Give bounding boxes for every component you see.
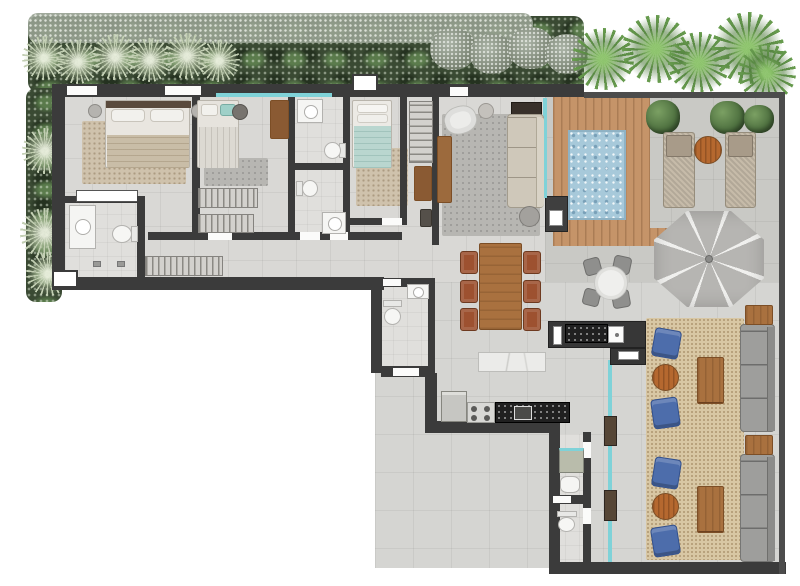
fridge — [441, 391, 467, 422]
lounge-sofa — [740, 454, 775, 562]
master-bed — [105, 100, 190, 168]
blanket — [107, 135, 189, 168]
dining-chair — [460, 280, 478, 303]
pool — [568, 130, 626, 220]
lounger-cushion — [666, 135, 692, 157]
lounge-side-table — [745, 305, 773, 325]
cooktop — [467, 402, 495, 423]
door-powder-room — [383, 279, 401, 286]
lounge-round-table — [652, 364, 679, 391]
door-bedroom-3 — [382, 218, 402, 225]
sun-lounger — [663, 132, 695, 208]
outer-wall-mid-left — [371, 277, 382, 373]
parasol-pole — [705, 255, 713, 263]
kitchen-island — [478, 352, 546, 372]
pillow — [357, 114, 388, 123]
door-bathroom-3 — [300, 232, 320, 240]
living-sideboard — [437, 136, 452, 203]
master-built-in-niche — [76, 190, 138, 202]
bathroom-2-toilet — [324, 142, 346, 159]
blanket — [199, 127, 238, 168]
pool-equipment-door — [549, 210, 563, 226]
sink-basin — [328, 217, 342, 231]
window-recess-1 — [67, 86, 97, 95]
window-glass-bedrooms — [216, 93, 332, 97]
lounge-coffee-table-pair — [697, 357, 724, 404]
lounge-round-table — [652, 493, 679, 520]
window-recess-2 — [165, 86, 201, 95]
toilet-bowl — [324, 142, 341, 159]
outer-wall-left — [52, 84, 65, 290]
bar-sink — [608, 326, 624, 343]
burner — [484, 406, 490, 412]
sliding-door-leaf-2 — [604, 490, 617, 521]
lounger-cushion — [728, 135, 753, 157]
pillow — [201, 104, 218, 116]
lounge-blue-armchair — [651, 327, 683, 360]
bedroom-2-wardrobe-hatch — [198, 214, 254, 233]
powder-toilet — [382, 300, 403, 326]
powder-sink — [407, 284, 429, 299]
gray-shrub-icon — [430, 28, 476, 70]
toilet-tank — [383, 300, 402, 307]
bathroom-2-vanity — [297, 99, 323, 123]
terrace-bush — [744, 105, 774, 133]
door-service-bath — [553, 496, 571, 503]
exterior-niche-box — [52, 270, 78, 288]
glass-corridor-lounge — [608, 360, 612, 562]
sofa-backrest — [767, 327, 775, 431]
lounge-blue-armchair — [651, 456, 682, 490]
pillow — [150, 109, 184, 122]
bedroom-2-wardrobe-hatch — [198, 188, 258, 208]
terrace-parapet-top — [584, 92, 779, 98]
sofa-backrest — [767, 457, 775, 561]
sink-basin — [304, 105, 318, 119]
bar-countertop — [565, 324, 608, 343]
gray-shrub-icon — [470, 34, 514, 74]
door-hall-kitchen — [393, 368, 419, 376]
terrace-bush — [710, 101, 745, 134]
sliding-door-leaf-1 — [604, 416, 617, 446]
sun-lounger — [725, 132, 756, 208]
terrace-parapet-right — [779, 92, 785, 574]
shower-drain — [93, 261, 101, 267]
nightstand — [88, 104, 102, 118]
corridor-wardrobe-hatch — [145, 256, 223, 276]
bar-cabinet-door — [553, 326, 562, 345]
wall-baths-split — [295, 163, 348, 170]
floor-plan — [0, 0, 800, 586]
bedroom-2-dresser — [270, 100, 289, 139]
toilet-bowl — [384, 308, 401, 325]
outdoor-dining-table — [594, 266, 628, 300]
sofa-backrest — [536, 117, 544, 207]
bar-opening — [618, 351, 639, 360]
sink-basin — [413, 287, 424, 298]
entry-door-box — [352, 74, 378, 92]
dining-chair — [460, 251, 478, 274]
door-servbath-corridor — [583, 508, 591, 524]
lounge-coffee-table-pair — [697, 486, 724, 533]
wall-powder-right — [428, 278, 435, 375]
burner — [484, 415, 490, 421]
dining-chair — [523, 251, 541, 274]
wall-bed3-closet — [400, 97, 407, 219]
living-sofa — [507, 114, 544, 208]
laundry-sink — [560, 476, 580, 493]
sink-basin — [75, 219, 91, 235]
lounge-blue-armchair — [650, 396, 681, 429]
master-toilet — [112, 225, 138, 243]
lounge-blue-armchair — [650, 524, 681, 558]
door-bedroom-2 — [208, 232, 232, 240]
blanket-teal — [354, 126, 391, 168]
living-side-table — [478, 103, 494, 119]
living-round-table — [519, 206, 540, 227]
burner — [471, 406, 477, 412]
lounge-side-table — [745, 435, 773, 455]
terrace-bush — [646, 100, 680, 134]
master-vanity — [69, 205, 96, 249]
faucet-dot — [615, 333, 619, 337]
washing-machine — [559, 448, 584, 473]
wall-bed2-baths — [288, 97, 295, 237]
toilet-bowl — [558, 517, 575, 532]
bathroom-3-toilet — [296, 180, 318, 197]
window-recess-3 — [450, 87, 468, 96]
toilet-tank — [131, 226, 138, 242]
headboard — [106, 101, 191, 108]
dining-table — [479, 243, 522, 330]
pouf — [232, 104, 248, 120]
lounge-sofa — [740, 324, 775, 432]
kitchen-sink — [514, 406, 532, 420]
dining-chair — [523, 308, 541, 331]
bedroom-3-bed — [352, 100, 392, 168]
terrace-round-table — [694, 136, 722, 164]
hall-open-closet — [409, 101, 433, 163]
hall-console — [414, 166, 432, 201]
service-toilet — [555, 511, 579, 532]
shower-drain — [117, 261, 125, 267]
dining-chair — [523, 280, 541, 303]
dining-chair — [460, 308, 478, 331]
outer-wall-bottom-topband — [52, 277, 384, 290]
bathroom-3-vanity — [322, 212, 346, 234]
toilet-bowl — [112, 225, 132, 243]
sage-palm-icon — [198, 40, 240, 82]
hall-bench — [420, 209, 432, 227]
kitchen-counter — [495, 402, 570, 423]
toilet-bowl — [302, 180, 318, 197]
burner — [471, 415, 477, 421]
door-laundry — [583, 442, 591, 458]
pillow — [111, 109, 145, 122]
wall-masterbath-right — [137, 196, 145, 290]
pillow — [357, 104, 388, 113]
